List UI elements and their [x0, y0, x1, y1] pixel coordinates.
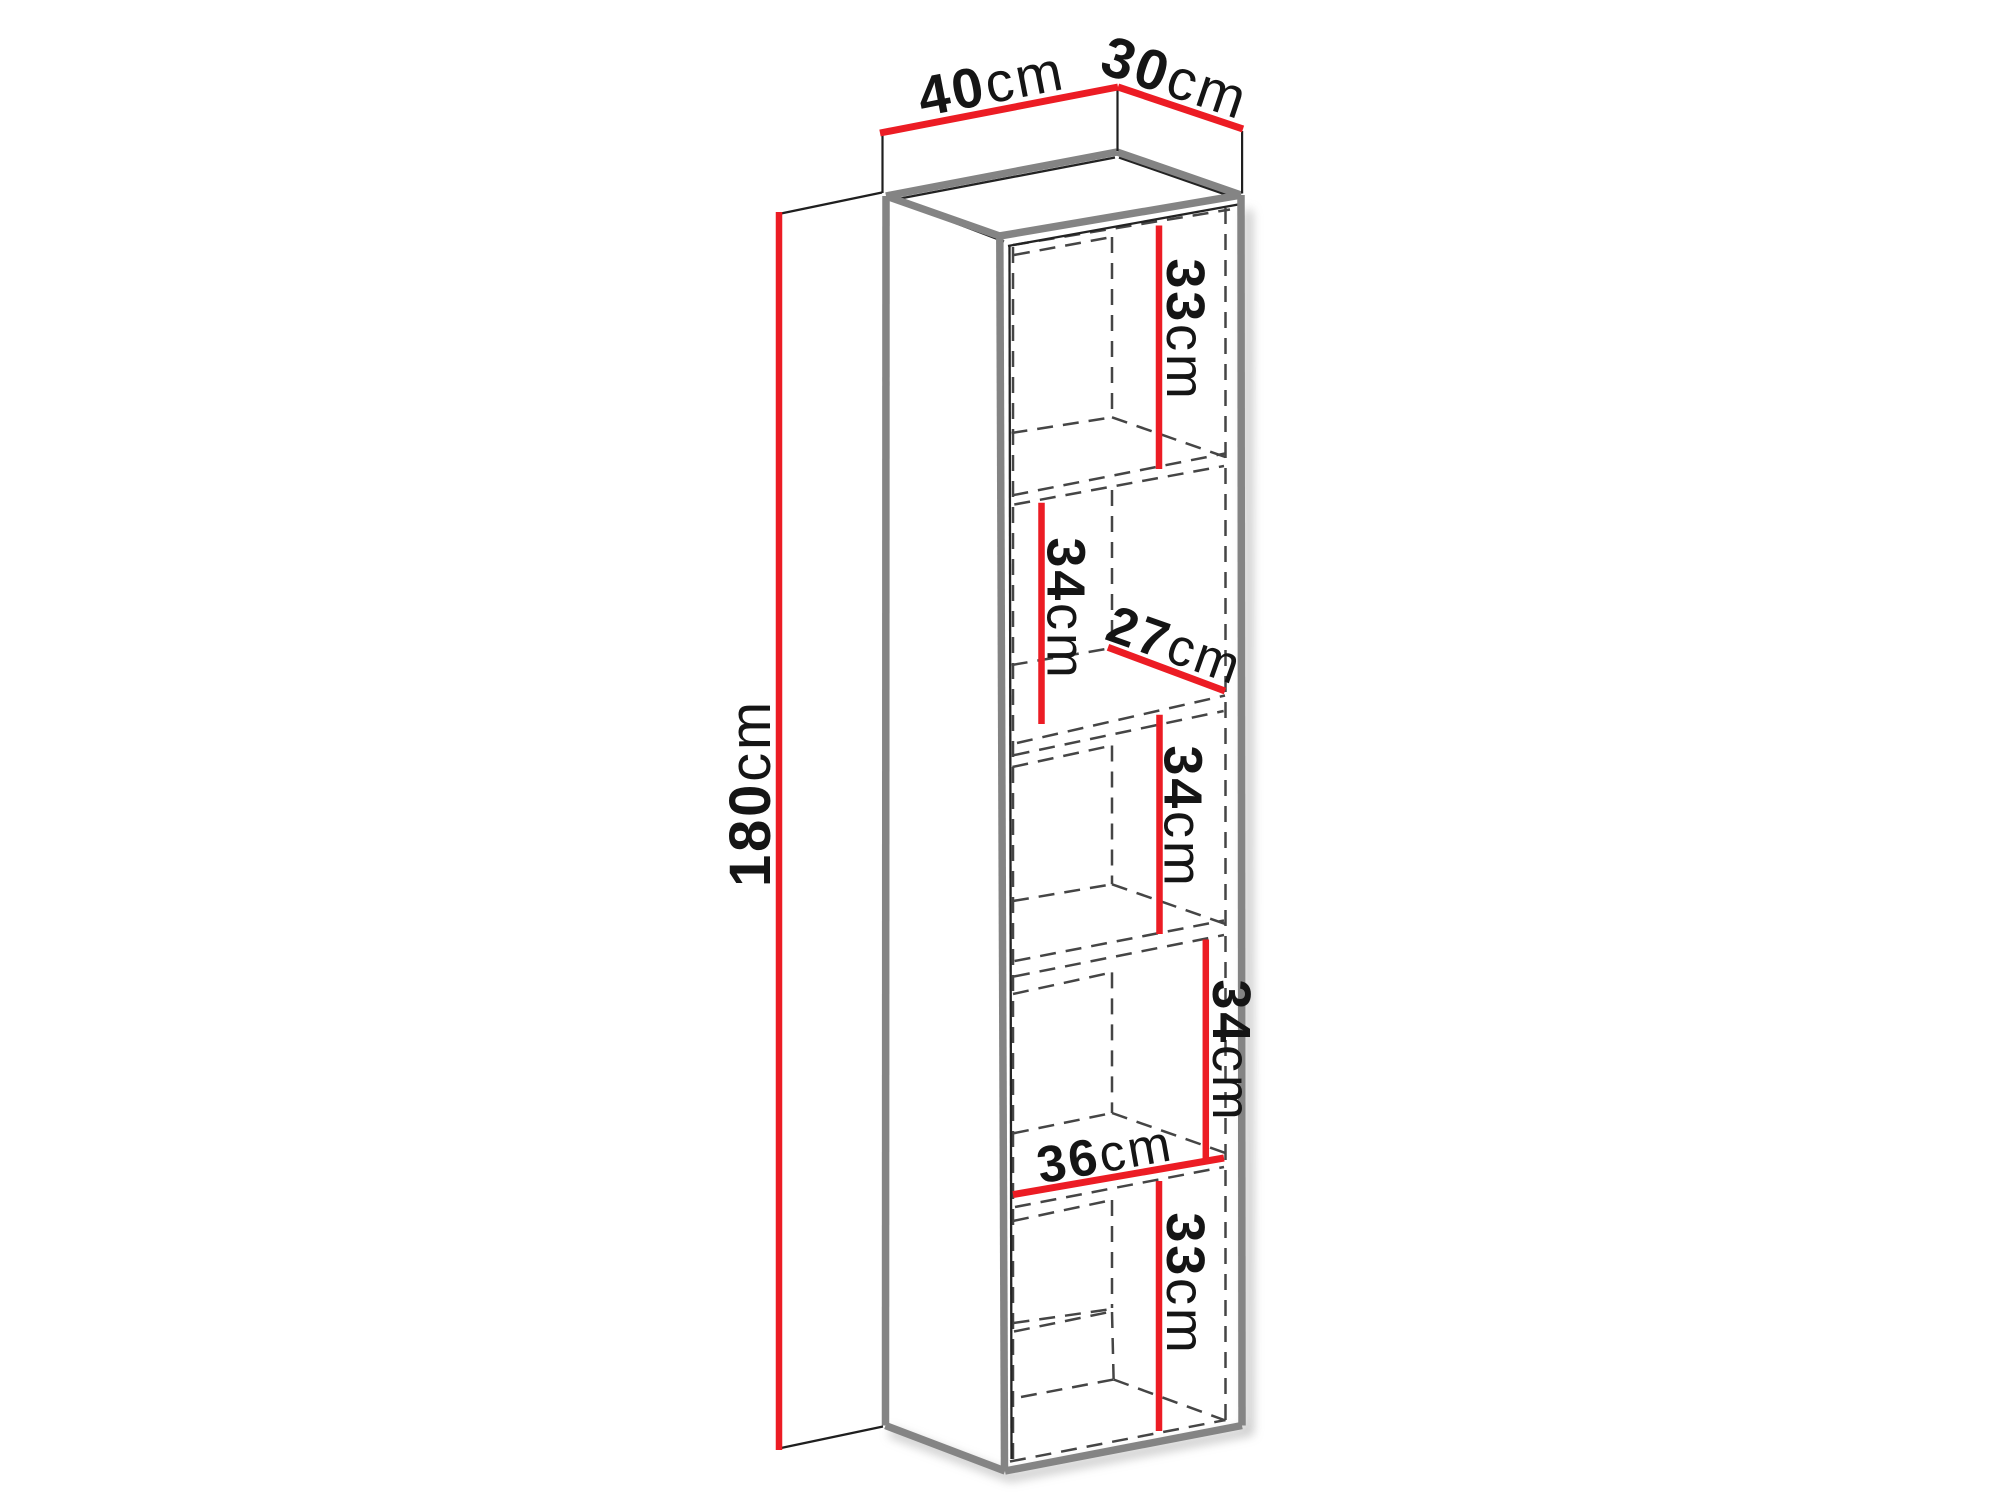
svg-text:180cm: 180cm	[718, 699, 783, 887]
svg-text:33cm: 33cm	[1155, 258, 1215, 401]
svg-text:34cm: 34cm	[1153, 745, 1213, 888]
svg-text:33cm: 33cm	[1155, 1212, 1215, 1355]
svg-text:34cm: 34cm	[1201, 979, 1261, 1122]
svg-text:34cm: 34cm	[1036, 537, 1096, 680]
